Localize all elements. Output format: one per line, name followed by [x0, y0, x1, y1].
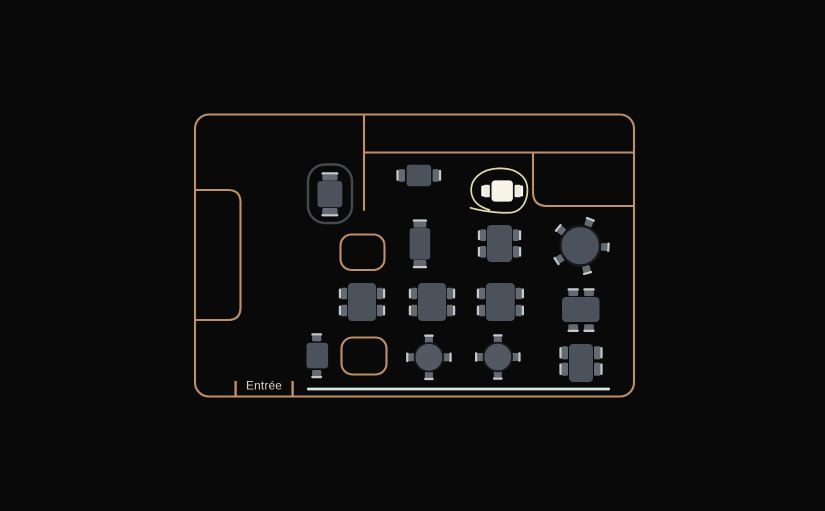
svg-text:Entrée: Entrée: [246, 379, 282, 393]
